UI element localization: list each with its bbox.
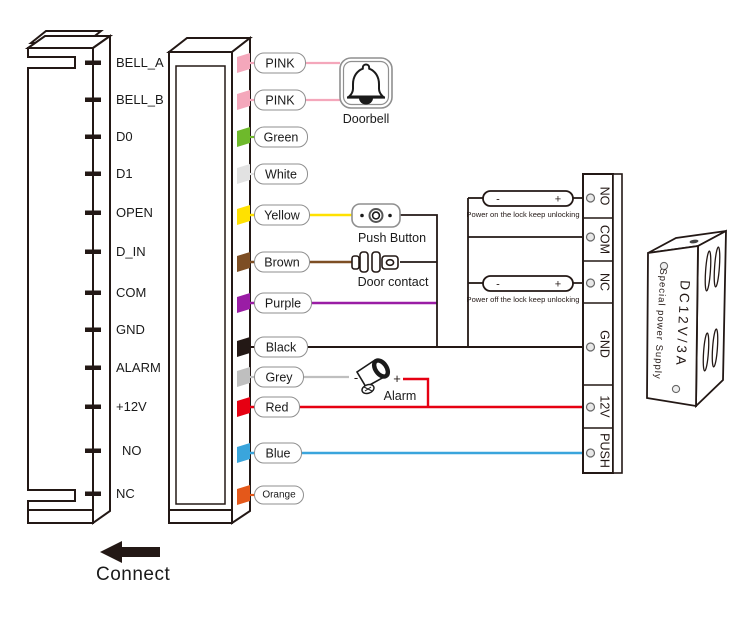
alarm-caption: Alarm	[384, 389, 417, 403]
lock-power-off-capsule: - + Power off the lock keep unlocking	[467, 276, 580, 304]
pin-tick	[85, 366, 101, 371]
pin-label-nc: NC	[116, 486, 135, 501]
keypad-slot-bottom	[28, 490, 75, 501]
alarm-plus-sign: +	[393, 371, 401, 386]
screw-icon	[587, 279, 595, 287]
terminal-label: COM	[598, 225, 612, 254]
terminal-label: 12V	[598, 395, 612, 418]
pin-tick	[85, 449, 101, 454]
pin-label-com: COM	[116, 285, 146, 300]
pin-label-bell-b: BELL_B	[116, 92, 164, 107]
wire-label-white: White	[254, 164, 308, 185]
pin-label-alarm: ALARM	[116, 360, 161, 375]
capsule-plus: +	[555, 279, 561, 291]
wire-label-red: Red	[254, 397, 300, 418]
diagram-canvas: - + - + Power on the lock keep unlocking…	[0, 0, 750, 617]
wire-label-purple: Purple	[254, 293, 312, 314]
wire-label-orange: Orange	[254, 486, 304, 505]
keypad-base	[28, 510, 93, 523]
terminal-label: GND	[598, 330, 612, 358]
push-button-caption: Push Button	[358, 231, 426, 245]
screw-icon	[587, 194, 595, 202]
screw-icon	[587, 449, 595, 457]
connect-label: Connect	[96, 564, 170, 586]
pin-label-d0: D0	[116, 129, 133, 144]
wire-label-black: Black	[254, 337, 308, 358]
keypad-slot-top	[28, 57, 75, 68]
keypad-front-face	[28, 48, 93, 510]
pin-label-gnd: GND	[116, 322, 145, 337]
screw-icon	[672, 385, 679, 392]
pin-label-12v: +12V	[116, 399, 147, 414]
doorbell-caption: Doorbell	[343, 112, 390, 126]
door-contact-icon	[352, 252, 398, 272]
pin-label-no: NO	[122, 443, 142, 458]
pin-tick	[85, 135, 101, 140]
push-button-icon	[352, 204, 400, 227]
power-supply-unit: DC12V/3A Special power Supply	[647, 231, 726, 406]
wire-label-pink-1: PINK	[254, 53, 306, 74]
device-inner-panel	[176, 66, 225, 504]
wire-label-blue: Blue	[254, 443, 302, 464]
screw-icon	[587, 233, 595, 241]
pin-tick	[85, 405, 101, 410]
wire-label-pink-2: PINK	[254, 90, 306, 111]
door-contact-caption: Door contact	[358, 275, 429, 289]
lock-note-text: Power on the lock keep unlocking	[466, 210, 579, 219]
pin-label-bell-a: BELL_A	[116, 55, 164, 70]
screw-icon	[587, 343, 595, 351]
terminal-label: PUSH	[598, 433, 612, 468]
capsule-minus: -	[496, 194, 500, 206]
pin-tick	[85, 211, 101, 216]
connector-lines	[400, 198, 590, 347]
screw-icon	[587, 403, 595, 411]
capsule-minus: -	[496, 279, 500, 291]
pin-label-open: OPEN	[116, 205, 153, 220]
wiring-diagram: - + - + Power on the lock keep unlocking…	[0, 0, 750, 617]
pin-label-d-in: D_IN	[116, 244, 146, 259]
pin-tick	[85, 328, 101, 333]
wire-label-grey: Grey	[254, 367, 304, 388]
connect-arrow-icon	[100, 541, 160, 563]
doorbell-icon	[340, 58, 392, 108]
pin-tick	[85, 492, 101, 497]
wire-label-yellow: Yellow	[254, 205, 310, 226]
pin-tick	[85, 61, 101, 66]
pin-tick	[85, 98, 101, 103]
capsule-plus: +	[555, 194, 561, 206]
pin-tick	[85, 291, 101, 296]
terminal-label: NC	[598, 273, 612, 291]
pin-tick	[85, 250, 101, 255]
wire-label-green: Green	[254, 127, 308, 148]
terminal-block: NO COM NC GND 12V PUSH	[583, 174, 622, 473]
pin-label-d1: D1	[116, 166, 133, 181]
pin-tick	[85, 172, 101, 177]
terminal-label: NO	[598, 187, 612, 206]
wire-label-brown: Brown	[254, 252, 310, 273]
device-base	[169, 510, 232, 523]
lock-power-on-capsule: - + Power on the lock keep unlocking	[466, 191, 579, 219]
lock-note-text: Power off the lock keep unlocking	[467, 295, 580, 304]
terminal-block-side	[613, 174, 622, 473]
